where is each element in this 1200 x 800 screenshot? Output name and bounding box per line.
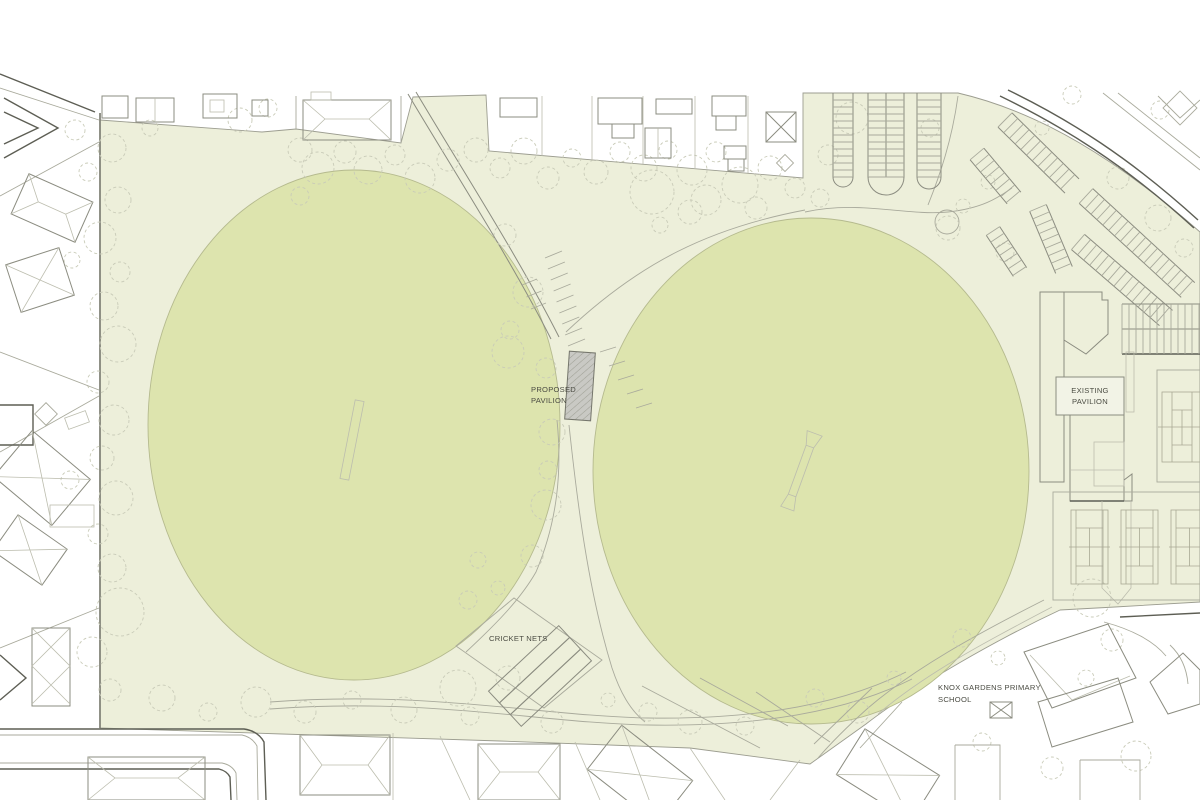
site-plan-map: PROPOSED PAVILION CRICKET NETS EXISTING … (0, 0, 1200, 800)
existing-pavilion-label-line2: PAVILION (1072, 397, 1108, 406)
existing-pavilion-label-line1: EXISTING (1071, 386, 1108, 395)
east-oval (593, 218, 1029, 724)
proposed-pavilion-label-line1: PROPOSED (531, 385, 576, 394)
site-plan: PROPOSED PAVILION CRICKET NETS EXISTING … (0, 0, 1200, 800)
existing-pavilion-label-box (1056, 377, 1124, 415)
west-oval (148, 170, 560, 680)
school-label-line2: SCHOOL (938, 695, 972, 704)
cricket-nets-label: CRICKET NETS (489, 634, 548, 643)
school-label-line1: KNOX GARDENS PRIMARY (938, 683, 1041, 692)
proposed-pavilion-label-line2: PAVILION (531, 396, 567, 405)
